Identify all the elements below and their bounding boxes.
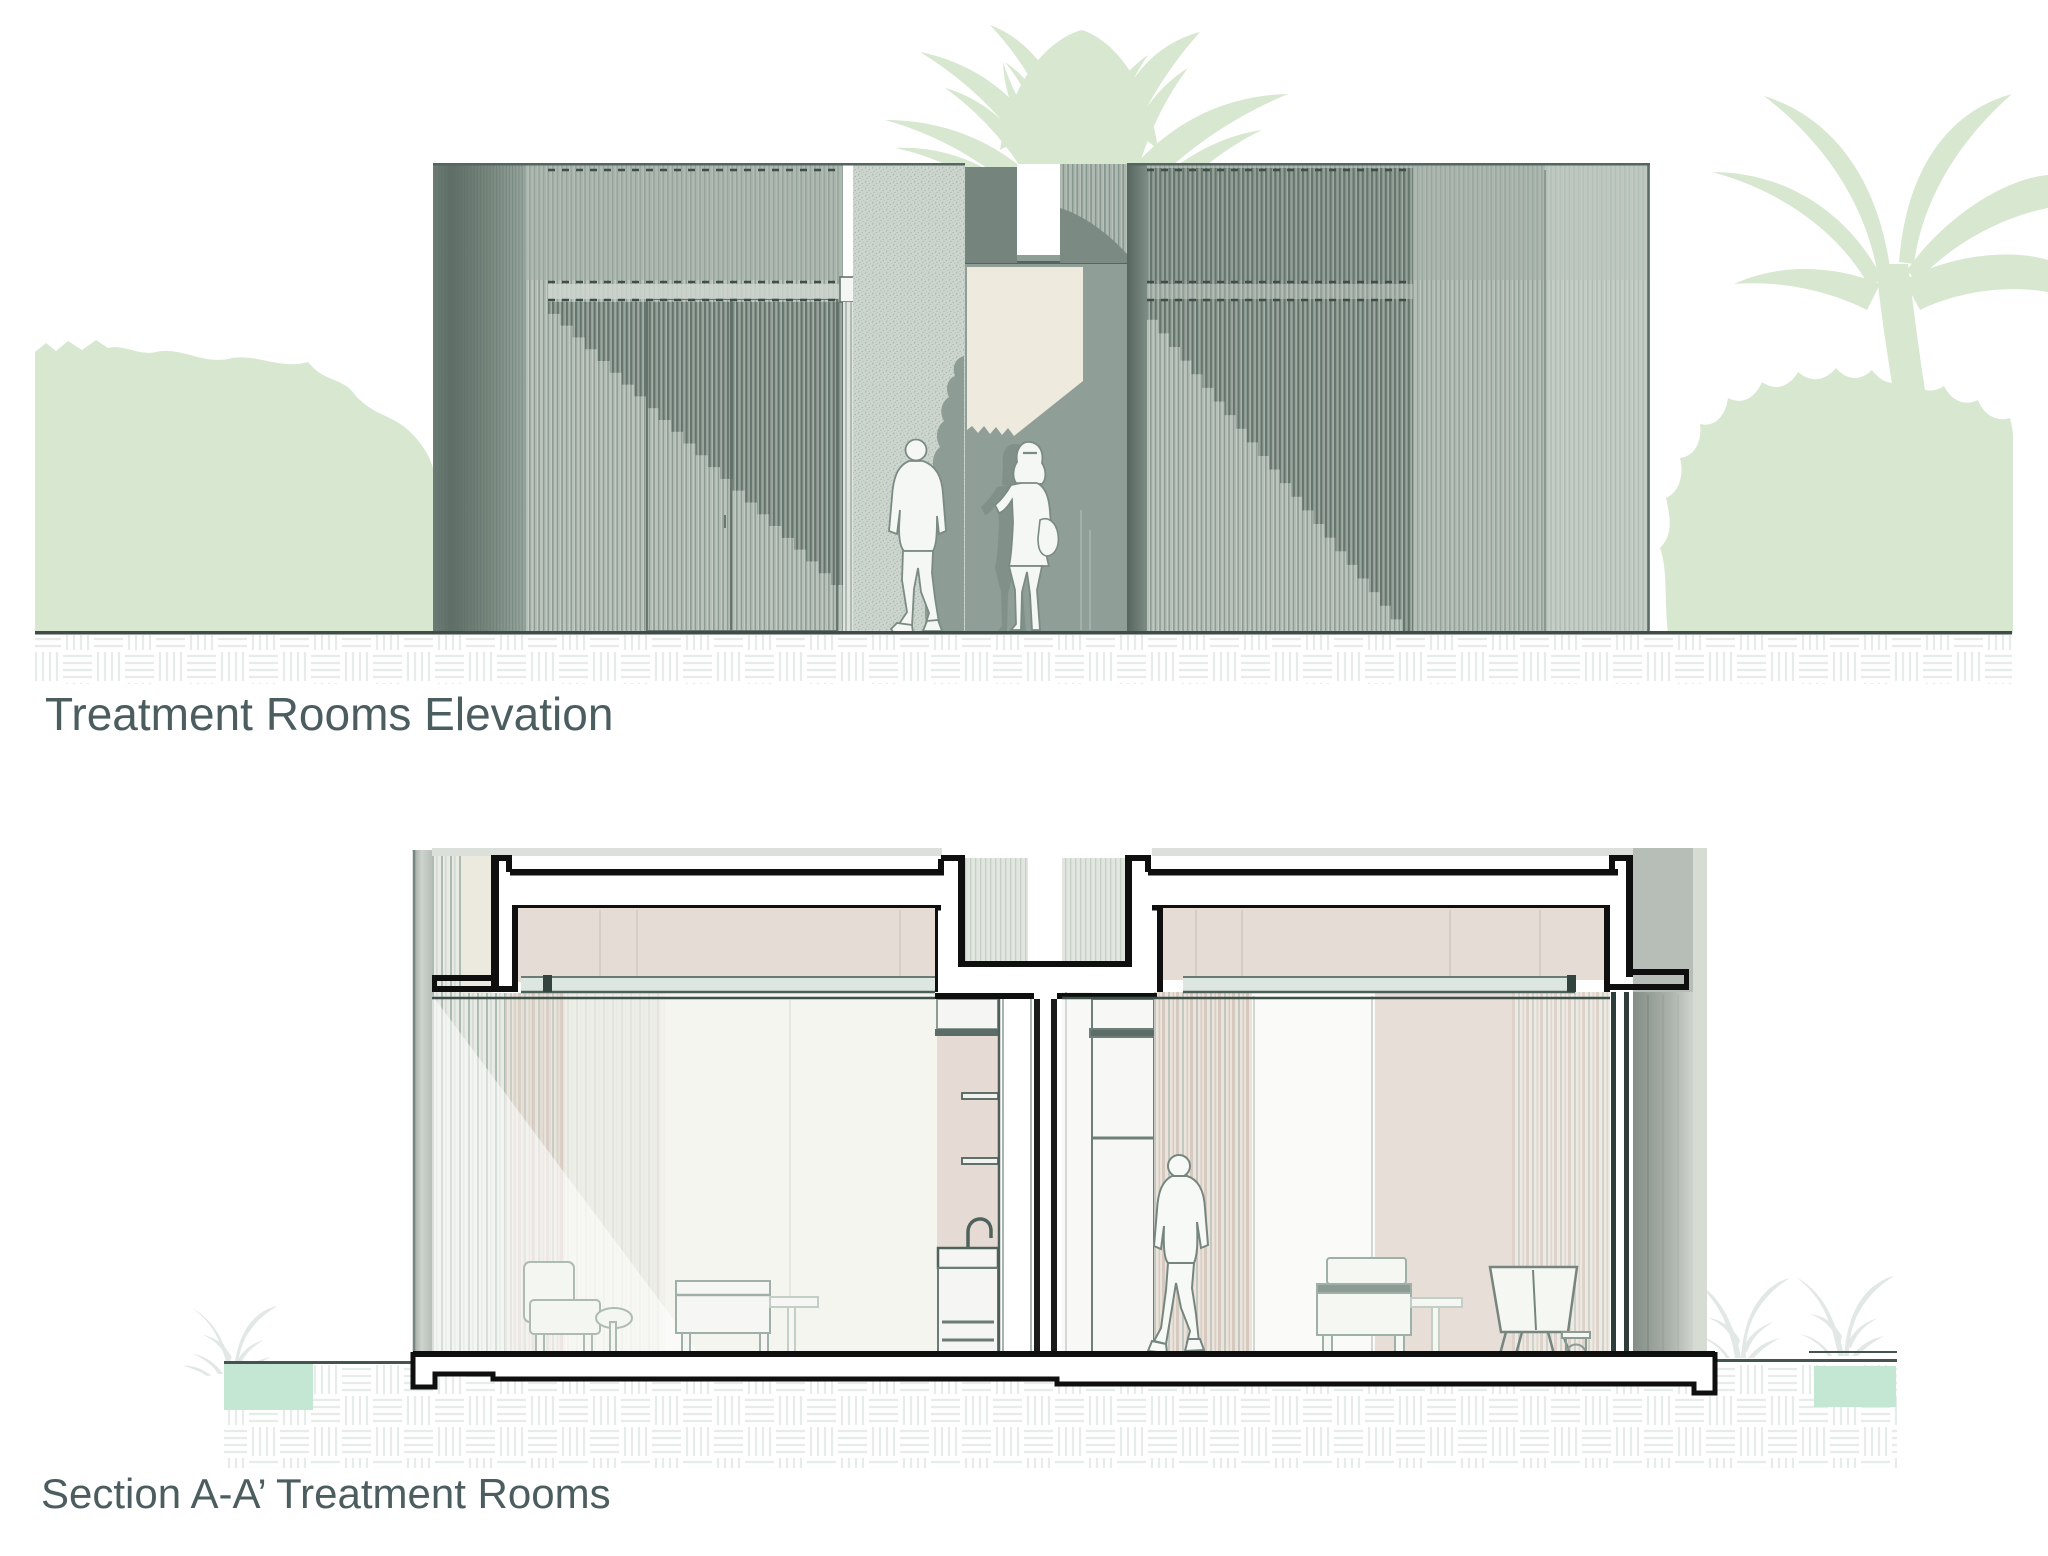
svg-text:Treatment Rooms Elevation: Treatment Rooms Elevation (45, 688, 613, 740)
svg-text:Section A-A’ Treatment Rooms: Section A-A’ Treatment Rooms (41, 1470, 611, 1517)
